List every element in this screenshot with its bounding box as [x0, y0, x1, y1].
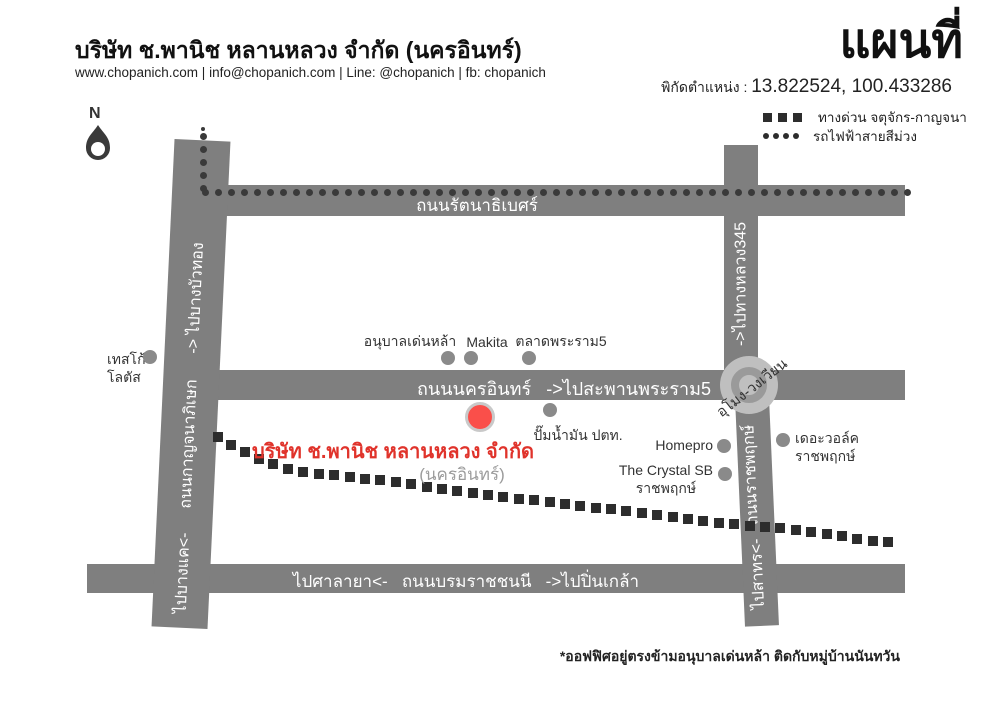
metro-line-dot	[787, 189, 794, 196]
expressway-dash	[591, 503, 601, 513]
expressway-dash	[391, 477, 401, 487]
road-label-rattanathibet: ถนนรัตนาธิเบศร์	[416, 192, 538, 219]
metro-line-dot	[200, 159, 207, 166]
landmark-label-homepro: Homepro	[655, 436, 713, 454]
metro-line-dot	[657, 189, 664, 196]
metro-line-dot	[553, 189, 560, 196]
metro-line-dot	[644, 189, 651, 196]
metro-line-dot	[462, 189, 469, 196]
expressway-dash	[729, 519, 739, 529]
expressway-dash	[837, 531, 847, 541]
metro-line-dot	[254, 189, 261, 196]
expressway-dash	[822, 529, 832, 539]
page-title: แผนที่	[839, 16, 963, 69]
destination-marker	[465, 402, 495, 432]
metro-line-dot	[397, 189, 404, 196]
expressway-dash	[652, 510, 662, 520]
metro-line-dot	[891, 189, 898, 196]
expressway-dash	[883, 537, 893, 547]
expressway-dash	[852, 534, 862, 544]
metro-line-dot	[527, 189, 534, 196]
metro-line-dot	[228, 189, 235, 196]
metro-line-dot	[618, 189, 625, 196]
road-label-to-bangkhae: ไปบางแค<-	[169, 532, 198, 614]
company-title: บริษัท ช.พานิช หลานหลวง จำกัด (นครอินทร์…	[75, 33, 522, 69]
metro-line-dot	[200, 146, 207, 153]
expressway-dash	[791, 525, 801, 535]
expressway-dash	[406, 479, 416, 489]
coords-label: พิกัดตำแหน่ง :	[661, 79, 751, 95]
expressway-dash	[498, 492, 508, 502]
expressway-dash	[683, 514, 693, 524]
metro-line-dot	[800, 189, 807, 196]
metro-line-dot	[683, 189, 690, 196]
landmark-label-the-walk-ratchaphruek: เดอะวอล์คราชพฤกษ์	[795, 429, 859, 465]
company-contacts: www.chopanich.com | info@chopanich.com |…	[75, 65, 546, 80]
map-page: บริษัท ช.พานิช หลานหลวง จำกัด (นครอินทร์…	[0, 0, 1000, 707]
landmark-dot-the-walk-ratchaphruek	[776, 433, 790, 447]
metro-line-dot	[280, 189, 287, 196]
metro-line-dot	[215, 189, 222, 196]
expressway-dash	[298, 467, 308, 477]
metro-line-dot	[826, 189, 833, 196]
office-footnote: *ออฟฟิศอยู่ตรงข้ามอนุบาลเด่นหล้า ติดกับห…	[560, 646, 900, 668]
expressway-dash	[468, 488, 478, 498]
metro-line-dot	[670, 189, 677, 196]
metro-line-dot	[200, 172, 207, 179]
metro-line-dot	[319, 189, 326, 196]
expressway-dash	[637, 508, 647, 518]
metro-line-dot	[202, 189, 209, 196]
expressway-dash	[213, 432, 223, 442]
road-label-to-highway345: ->ไปทางหลวง345	[729, 222, 754, 346]
metro-dot-swatch	[763, 133, 803, 139]
expressway-dash	[621, 506, 631, 516]
metro-line-dot	[514, 189, 521, 196]
metro-line-dot	[410, 189, 417, 196]
metro-line-dot	[358, 189, 365, 196]
expressway-dash	[545, 497, 555, 507]
metro-line-dot	[201, 127, 205, 131]
metro-line-dot	[761, 189, 768, 196]
road-label-borommaratchachonnani: ไปศาลายา<- ถนนบรมราชชนนี ->ไปปิ่นเกล้า	[293, 568, 639, 595]
landmark-label-denla-kindergarten: อนุบาลเด่นหล้า	[364, 332, 456, 350]
road-label-to-bangbuathong: -> ไปบางบัวทอง	[181, 242, 211, 354]
metro-line-dot	[579, 189, 586, 196]
expressway-dash	[714, 518, 724, 528]
metro-line-dot	[904, 189, 911, 196]
metro-line-dot	[722, 189, 729, 196]
legend-metro: รถไฟฟ้าสายสีม่วง	[763, 125, 917, 147]
expressway-dash	[226, 440, 236, 450]
metro-line-dot	[423, 189, 430, 196]
metro-line-dot	[605, 189, 612, 196]
expressway-dash	[483, 490, 493, 500]
metro-line-dot	[566, 189, 573, 196]
metro-line-dot	[540, 189, 547, 196]
landmark-dot-ptt-gas-station	[543, 403, 557, 417]
legend-metro-label: รถไฟฟ้าสายสีม่วง	[813, 125, 917, 147]
metro-line-dot	[631, 189, 638, 196]
landmark-label-talat-phra-ram5: ตลาดพระราม5	[515, 332, 606, 350]
metro-line-dot	[748, 189, 755, 196]
landmark-label-makita: Makita	[466, 333, 507, 351]
expressway-dash	[360, 474, 370, 484]
expressway-dash	[514, 494, 524, 504]
compass-icon	[79, 123, 117, 165]
metro-line-dot	[449, 189, 456, 196]
destination-branch: (นครอินทร์)	[419, 461, 505, 488]
landmark-label-the-crystal-sb: The Crystal SBราชพฤกษ์	[619, 461, 713, 497]
road-label-to-sathorn: ไปสาทร<-	[744, 538, 772, 610]
landmark-dot-talat-phra-ram5	[522, 351, 536, 365]
north-label: N	[89, 105, 101, 123]
metro-line-dot	[592, 189, 599, 196]
expressway-dash	[329, 470, 339, 480]
coords-value: 13.822524, 100.433286	[751, 76, 952, 97]
metro-line-dot	[735, 189, 742, 196]
landmark-dot-the-crystal-sb	[718, 467, 732, 481]
expressway-dash	[314, 469, 324, 479]
landmark-dot-denla-kindergarten	[441, 351, 455, 365]
landmark-label-ptt-gas-station: ปั๊มน้ำมัน ปตท.	[533, 426, 622, 444]
landmark-dot-tesco-lotus	[143, 350, 157, 364]
metro-line-dot	[241, 189, 248, 196]
metro-line-dot	[878, 189, 885, 196]
metro-line-dot	[475, 189, 482, 196]
expressway-dash	[745, 521, 755, 531]
metro-line-dot	[293, 189, 300, 196]
expressway-dash	[760, 522, 770, 532]
expressway-dash	[668, 512, 678, 522]
road-label-nakhon-in: ถนนนครอินทร์ ->ไปสะพานพระราม5	[417, 374, 711, 403]
expressway-dash-swatch	[763, 113, 808, 122]
metro-line-dot	[384, 189, 391, 196]
expressway-dash	[698, 516, 708, 526]
expressway-dash	[606, 504, 616, 514]
landmark-label-tesco-lotus: เทสโก้โลตัส	[107, 350, 146, 386]
metro-line-dot	[345, 189, 352, 196]
metro-line-dot	[774, 189, 781, 196]
metro-line-dot	[200, 133, 207, 140]
metro-line-dot	[332, 189, 339, 196]
metro-line-dot	[865, 189, 872, 196]
gps-coordinates: พิกัดตำแหน่ง : 13.822524, 100.433286	[661, 76, 952, 99]
metro-line-dot	[839, 189, 846, 196]
expressway-dash	[575, 501, 585, 511]
expressway-dash	[375, 475, 385, 485]
metro-line-dot	[813, 189, 820, 196]
metro-line-dot	[436, 189, 443, 196]
expressway-dash	[775, 523, 785, 533]
expressway-dash	[868, 536, 878, 546]
expressway-dash	[240, 447, 250, 457]
metro-line-dot	[267, 189, 274, 196]
metro-line-dot	[306, 189, 313, 196]
metro-line-dot	[488, 189, 495, 196]
metro-line-dot	[371, 189, 378, 196]
expressway-dash	[529, 495, 539, 505]
expressway-dash	[345, 472, 355, 482]
landmark-dot-homepro	[717, 439, 731, 453]
expressway-dash	[806, 527, 816, 537]
expressway-dash	[560, 499, 570, 509]
metro-line-dot	[709, 189, 716, 196]
metro-line-dot	[501, 189, 508, 196]
road-label-ratchaphruek: ถนนราชพฤกษ์	[736, 424, 765, 525]
landmark-dot-makita	[464, 351, 478, 365]
metro-line-dot	[696, 189, 703, 196]
metro-line-dot	[852, 189, 859, 196]
